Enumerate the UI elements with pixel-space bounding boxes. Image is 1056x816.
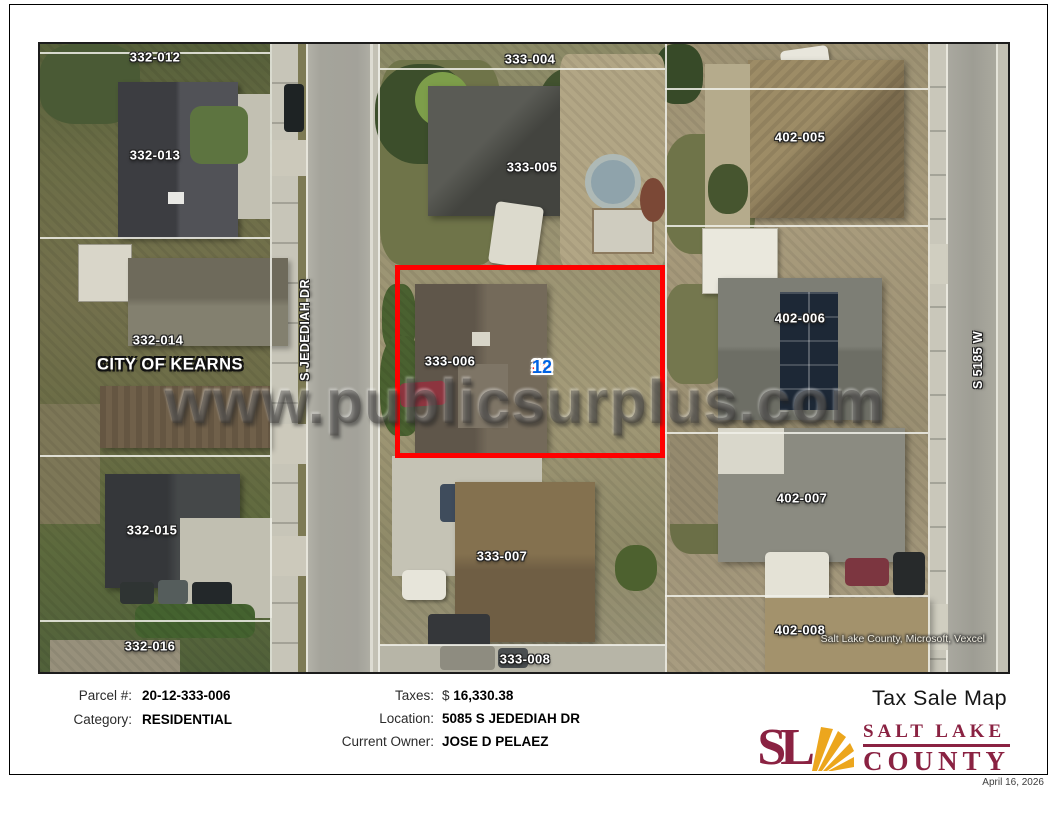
logo-text-salt-lake: SALT LAKE [863,721,1010,747]
location-label: Location: [318,711,434,726]
parcel-label-332-015: 332-015 [127,523,178,538]
parcel-line [665,225,928,227]
tree-canopy [708,164,748,214]
parcel-label-333-004: 333-004 [505,52,556,67]
page-title: Tax Sale Map [872,686,1007,711]
parcel-line [378,44,380,672]
road-jedediah [306,44,372,672]
parked-truck [284,84,304,132]
parked-car [192,582,232,606]
street-label-jedediah: S JEDEDIAH DR [298,279,312,381]
pool [585,154,641,210]
parcel-line [665,88,928,90]
aerial-imagery: www.publicsurplus.com 332-012 333-004 40… [40,44,1008,672]
generated-date: April 16, 2026 [982,777,1044,788]
watermark-text: www.publicsurplus.com [165,367,885,437]
parcel-details-left: Parcel #: 20-12-333-006 Category: RESIDE… [52,688,232,727]
parcel-line [40,620,270,622]
salt-lake-county-logo: SL SALT LAKE COUNTY [757,721,1010,775]
parcel-label-402-005: 402-005 [775,130,826,145]
parked-car-maroon [845,558,889,586]
parcel-label-332-016: 332-016 [125,639,176,654]
parked-truck [428,614,490,648]
parcel-label-333-007: 333-007 [477,549,528,564]
logo-wordmark: SALT LAKE COUNTY [863,721,1010,775]
aerial-map: www.publicsurplus.com 332-012 333-004 40… [38,42,1010,674]
taxes-label: Taxes: [318,688,434,703]
shoulder-5185 [998,44,1008,672]
location-value: 5085 S JEDEDIAH DR [442,711,580,726]
sale-tag-lot: 12 [532,357,552,378]
parcel-line [380,644,665,646]
sidewalk-west [272,44,298,672]
parcel-number-value: 20-12-333-006 [142,688,232,703]
rv-trailer [488,201,544,269]
city-label: CITY OF KEARNS [97,356,243,375]
yard-junk [670,434,718,524]
roof-texture [748,60,904,218]
yard-junk [40,404,100,524]
parcel-line [665,44,667,672]
tree-canopy [615,545,657,591]
house-333-005 [428,86,562,216]
parcel-line [665,595,928,597]
curb-5185-west [946,44,948,672]
parked-car [120,582,154,604]
parcel-line [928,44,930,672]
parcel-label-332-012: 332-012 [130,50,181,65]
street-label-5185w: S 5185 W [971,331,985,389]
rooftop-vent [168,192,184,204]
logo-sl-mark: SL [757,725,813,772]
parcel-line [40,455,270,457]
parcel-line [380,68,665,70]
parcel-label-402-008: 402-008 [775,623,826,638]
parcel-number-label: Parcel #: [52,688,132,703]
parcel-label-332-014: 332-014 [133,333,184,348]
imagery-attribution: Salt Lake County, Microsoft, Vexcel [821,633,985,645]
lawn-patch [190,106,248,164]
driveway-apron [930,244,948,284]
parcel-label-333-008: 333-008 [500,652,551,667]
parcel-label-333-006: 333-006 [425,354,476,369]
tax-sale-map-page: www.publicsurplus.com 332-012 333-004 40… [0,0,1056,816]
parcel-details-mid: Taxes: $ 16,330.38 Location: 5085 S JEDE… [318,688,580,749]
sidewalk-5185 [930,44,946,672]
tree-red [640,178,666,222]
parcel-line [270,44,272,672]
category-value: RESIDENTIAL [142,712,232,727]
lane-vehicle [440,646,495,670]
logo-text-county: COUNTY [863,747,1010,775]
taxes-value: $ 16,330.38 [442,688,580,703]
category-label: Category: [52,712,132,727]
taxes-currency: $ [442,688,450,703]
parcel-label-402-006: 402-006 [775,311,826,326]
parcel-label-333-005: 333-005 [507,160,558,175]
parked-car [158,580,188,604]
logo-sunburst-icon [812,725,854,771]
driveway-apron [272,536,306,576]
parcel-line [40,237,270,239]
driveway-apron [272,140,306,176]
parked-car-black [893,552,925,596]
parked-car-white [402,570,446,600]
parcel-label-402-007: 402-007 [777,491,828,506]
taxes-amount: 16,330.38 [453,688,513,703]
owner-value: JOSE D PELAEZ [442,734,580,749]
shed-white [78,244,132,302]
parcel-label-332-013: 332-013 [130,148,181,163]
owner-label: Current Owner: [318,734,434,749]
